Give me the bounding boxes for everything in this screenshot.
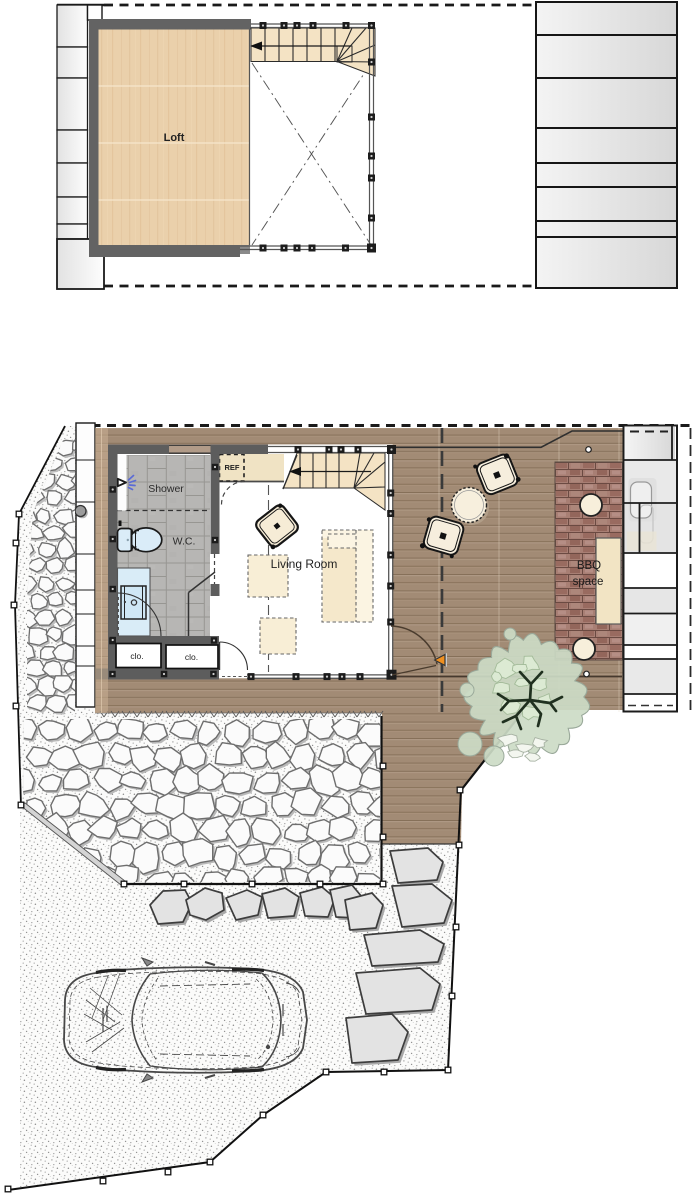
svg-text:Shower: Shower — [148, 483, 184, 495]
svg-text:BBQ: BBQ — [577, 560, 601, 572]
svg-text:space: space — [573, 576, 604, 588]
svg-text:Loft: Loft — [164, 132, 185, 144]
svg-text:W.C.: W.C. — [173, 536, 196, 548]
svg-text:REF: REF — [225, 463, 240, 472]
svg-text:clo.: clo. — [185, 652, 198, 662]
svg-text:Living Room: Living Room — [271, 557, 338, 571]
svg-text:clo.: clo. — [130, 651, 143, 661]
